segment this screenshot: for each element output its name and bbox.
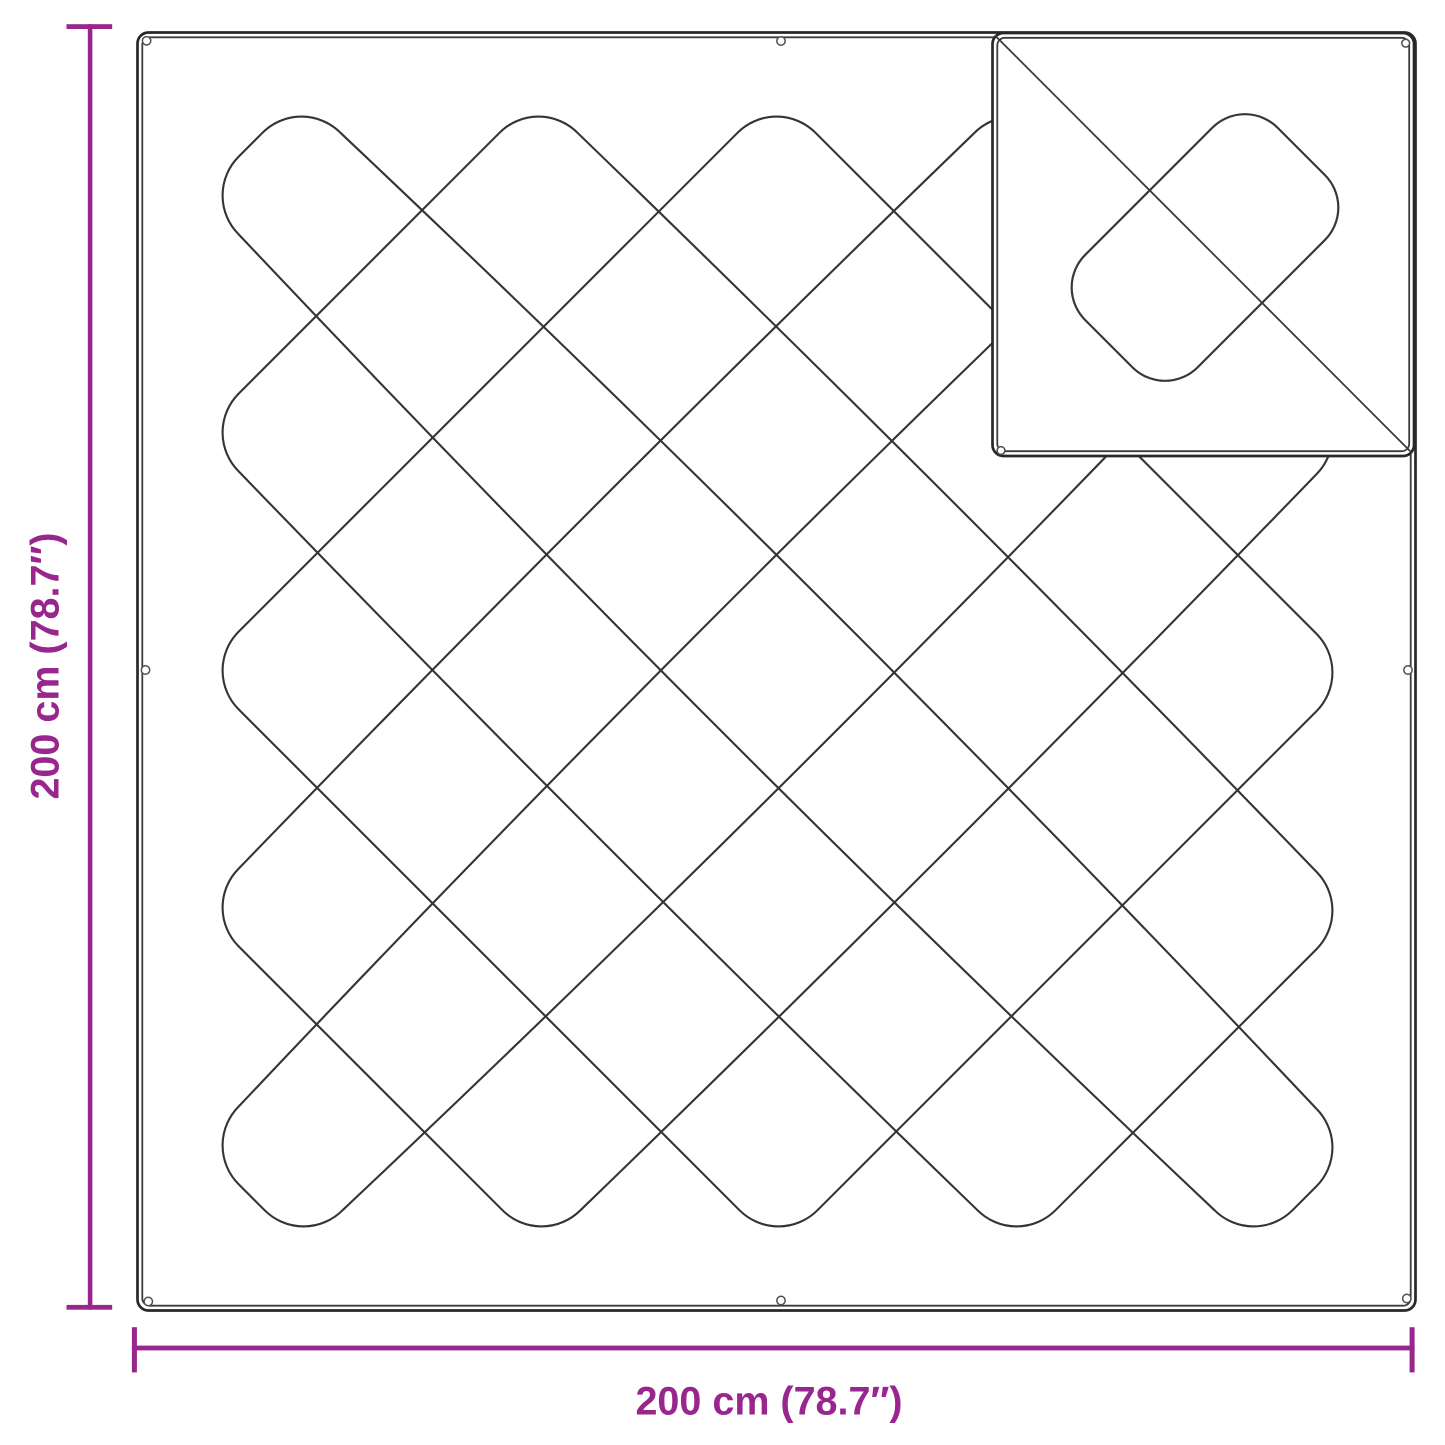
svg-text:200 cm (78.7″): 200 cm (78.7″) bbox=[635, 1380, 902, 1424]
svg-text:200 cm (78.7″): 200 cm (78.7″) bbox=[23, 532, 67, 799]
